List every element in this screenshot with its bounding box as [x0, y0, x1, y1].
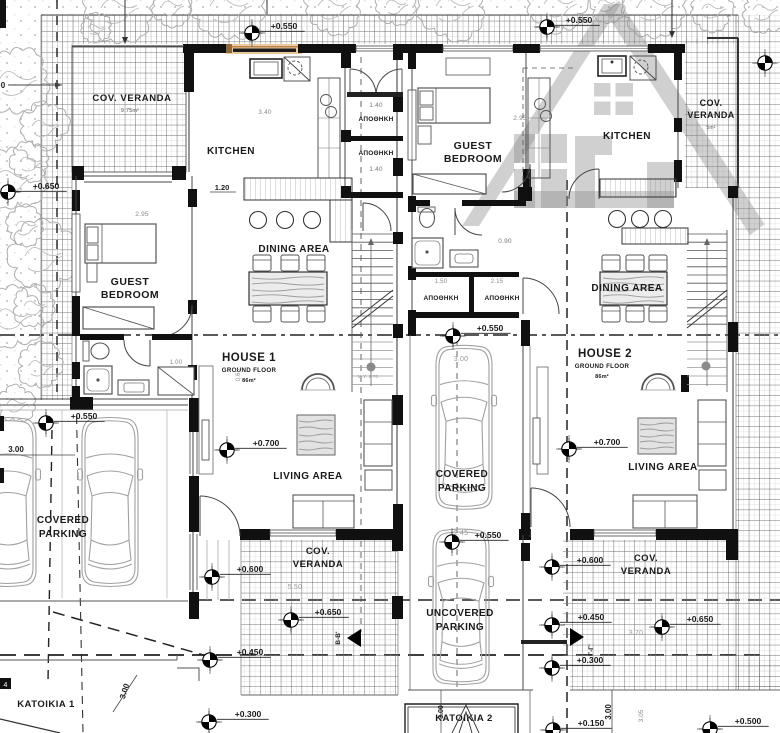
svg-text:PARKING: PARKING: [39, 529, 87, 540]
svg-text:3.00: 3.00: [454, 356, 468, 363]
svg-text:HOUSE 1: HOUSE 1: [222, 352, 276, 364]
svg-text:M.Υ. 2.70: M.Υ. 2.70: [358, 374, 379, 379]
svg-text:3.05: 3.05: [638, 709, 645, 722]
svg-text:+0.550: +0.550: [566, 15, 593, 25]
svg-text:5.50: 5.50: [288, 584, 302, 591]
svg-text:KITCHEN: KITCHEN: [207, 146, 255, 157]
svg-text:COV.: COV.: [306, 546, 330, 557]
svg-text:ΑΠΟΘΗΚΗ: ΑΠΟΘΗΚΗ: [359, 150, 394, 157]
svg-text:3.40: 3.40: [258, 109, 272, 116]
svg-text:VERANDA: VERANDA: [687, 110, 734, 120]
svg-text:+0.150: +0.150: [578, 718, 605, 728]
svg-text:+0.700: +0.700: [253, 438, 280, 448]
svg-text:+0.700: +0.700: [594, 437, 621, 447]
svg-text:LIVING AREA: LIVING AREA: [628, 462, 698, 473]
svg-text:LIVING AREA: LIVING AREA: [273, 471, 343, 482]
svg-text:ΑΠΟΘΗΚΗ: ΑΠΟΘΗΚΗ: [424, 295, 459, 302]
svg-text:UNCOVERED: UNCOVERED: [426, 608, 494, 619]
svg-text:+0.650: +0.650: [687, 614, 714, 624]
svg-text:+0.550: +0.550: [71, 411, 98, 421]
svg-text:VERANDA: VERANDA: [293, 559, 343, 570]
svg-text:KITCHEN: KITCHEN: [603, 131, 651, 142]
svg-text:Γ-Γ': Γ-Γ': [588, 644, 595, 656]
svg-text:HOUSE 2: HOUSE 2: [578, 348, 632, 360]
svg-text:DINING AREA: DINING AREA: [591, 283, 662, 294]
svg-text:1.40: 1.40: [369, 166, 383, 173]
svg-text:B-B': B-B': [335, 631, 342, 645]
svg-text:4: 4: [4, 682, 8, 689]
svg-text:ΑΠΟΘΗΚΗ: ΑΠΟΘΗΚΗ: [485, 295, 520, 302]
svg-text:0.90: 0.90: [498, 238, 512, 245]
svg-text:3.00: 3.00: [438, 705, 445, 719]
svg-text:GUEST: GUEST: [111, 276, 150, 288]
svg-text:86m²: 86m²: [242, 377, 256, 384]
svg-text:COV. VERANDA: COV. VERANDA: [92, 93, 171, 104]
svg-text:1.40: 1.40: [369, 102, 383, 109]
svg-text:+0.550: +0.550: [271, 21, 298, 31]
svg-text:+0.550: +0.550: [477, 323, 504, 333]
svg-text:BEDROOM: BEDROOM: [101, 289, 159, 301]
svg-text:86m²: 86m²: [595, 373, 609, 380]
svg-text:GUEST: GUEST: [454, 140, 493, 152]
svg-text:ΑΠΟΘΗΚΗ: ΑΠΟΘΗΚΗ: [359, 116, 394, 123]
svg-text:2.95: 2.95: [513, 115, 527, 122]
svg-text:+0.300: +0.300: [235, 709, 262, 719]
svg-text:BEDROOM: BEDROOM: [444, 153, 502, 165]
svg-text:VERANDA: VERANDA: [621, 566, 671, 577]
svg-text:3.00: 3.00: [8, 445, 24, 454]
svg-text:COV.: COV.: [700, 98, 723, 108]
svg-text:1.00: 1.00: [170, 360, 183, 366]
svg-text:0: 0: [1, 81, 6, 90]
svg-text:+0.450: +0.450: [237, 647, 264, 657]
svg-text:COV.: COV.: [634, 553, 658, 564]
svg-text:+0.650: +0.650: [33, 181, 60, 191]
svg-text:DINING AREA: DINING AREA: [258, 244, 329, 255]
svg-text:3.70: 3.70: [629, 630, 643, 637]
svg-text:PARKING: PARKING: [436, 622, 484, 633]
svg-text:+0.450: +0.450: [578, 612, 605, 622]
svg-text:1.20: 1.20: [215, 183, 230, 192]
svg-text:2.15: 2.15: [491, 279, 504, 285]
svg-text:+0.600: +0.600: [577, 555, 604, 565]
svg-text:9.75m²: 9.75m²: [121, 108, 139, 114]
svg-text:PARKING: PARKING: [438, 483, 486, 494]
svg-text:COVERED: COVERED: [37, 515, 89, 526]
svg-text:0.60: 0.60: [236, 368, 242, 381]
svg-text:GROUND FLOOR: GROUND FLOOR: [575, 363, 630, 370]
svg-text:+0.600: +0.600: [237, 564, 264, 574]
svg-text:GROUND FLOOR: GROUND FLOOR: [222, 367, 277, 374]
svg-text:KATOIKIA 1: KATOIKIA 1: [17, 699, 75, 710]
svg-text:2.95: 2.95: [135, 211, 149, 218]
svg-text:+0.650: +0.650: [315, 607, 342, 617]
svg-text:COVERED: COVERED: [436, 469, 488, 480]
svg-text:+0.550: +0.550: [475, 530, 502, 540]
svg-text:+0.500: +0.500: [735, 716, 762, 726]
svg-text:1.50: 1.50: [435, 279, 448, 285]
svg-text:5m²: 5m²: [706, 125, 715, 131]
